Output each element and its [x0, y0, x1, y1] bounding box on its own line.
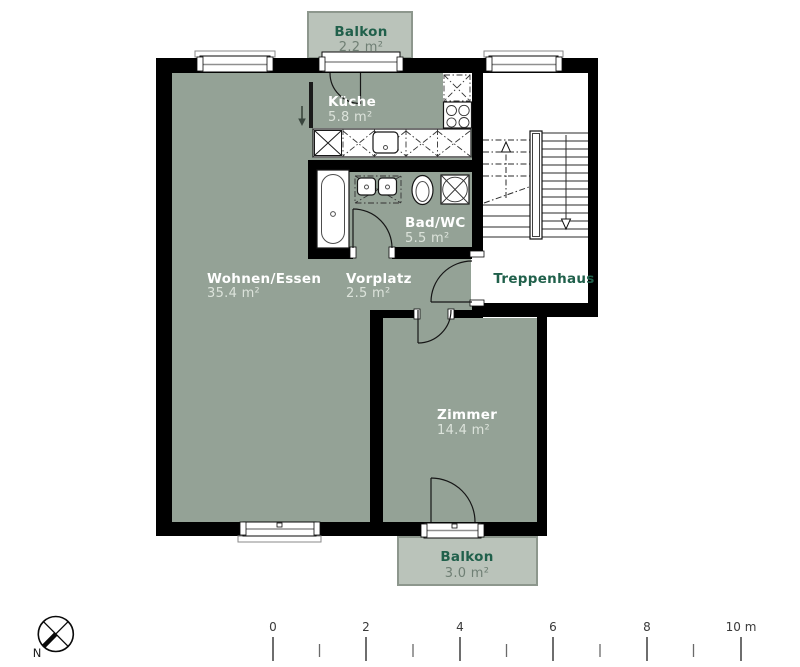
floor-plan-page: Balkon 2.2 m² Küche 5.8 m² Bad/WC 5.5 m²… — [0, 0, 800, 667]
label-balkon-bottom: Balkon — [440, 549, 493, 565]
scale-bar: 0 2 4 6 8 10 m — [269, 620, 756, 661]
label-treppenhaus: Treppenhaus — [493, 271, 594, 287]
label-kueche: Küche — [328, 94, 376, 110]
scale-tick-8: 8 — [643, 620, 651, 634]
scale-tick-0: 0 — [269, 620, 277, 634]
scale-tick-6: 6 — [549, 620, 557, 634]
area-vorplatz: 2.5 m² — [346, 286, 390, 301]
scale-tick-2: 2 — [362, 620, 370, 634]
area-bad-wc: 5.5 m² — [405, 231, 449, 246]
scale-minor-ticks — [320, 644, 694, 657]
window-stairwell — [484, 51, 563, 72]
stair-down-arrow-icon — [562, 219, 571, 229]
wall-stairwell-bottom — [472, 303, 598, 317]
wall-bottom — [156, 522, 547, 536]
compass-icon: N — [33, 617, 74, 661]
stair-up-arrow-icon — [502, 142, 511, 152]
area-balkon-bottom: 3.0 m² — [445, 566, 489, 581]
wall-kitchen-stairwell — [472, 58, 483, 255]
area-kueche: 5.8 m² — [328, 110, 372, 125]
wall-kitchen-partition — [309, 82, 313, 128]
area-zimmer: 14.4 m² — [437, 423, 490, 438]
wall-zimmer-right — [537, 310, 547, 536]
entrance-threshold — [471, 255, 484, 303]
stair-treads-up-flight-solid — [483, 205, 530, 237]
wall-vorplatz-zimmer-b — [450, 310, 483, 318]
bathtub-icon — [317, 170, 349, 248]
window-bottom-living — [238, 522, 321, 542]
toilet-icon — [412, 176, 433, 205]
wall-bath-south-b — [392, 247, 472, 259]
floor-plan-canvas: Balkon 2.2 m² Küche 5.8 m² Bad/WC 5.5 m²… — [0, 0, 800, 667]
compass-north-label: N — [33, 646, 42, 660]
label-zimmer: Zimmer — [437, 407, 497, 423]
floor-zimmer-door-passage — [418, 310, 450, 318]
area-wohnen-essen: 35.4 m² — [207, 286, 260, 301]
label-vorplatz: Vorplatz — [346, 271, 412, 287]
label-wohnen-essen: Wohnen/Essen — [207, 271, 321, 287]
area-balkon-top: 2.2 m² — [339, 40, 383, 55]
wall-bath-west — [308, 160, 317, 259]
wall-zimmer-left — [370, 310, 383, 522]
stove-icon — [444, 102, 472, 128]
stair-stringer — [530, 131, 542, 239]
staircase — [483, 131, 588, 239]
balcony-door-top — [319, 52, 403, 72]
window-top-living — [195, 51, 275, 72]
balcony-door-bottom — [421, 523, 484, 538]
scale-tick-4: 4 — [456, 620, 464, 634]
washing-machine-icon — [441, 175, 469, 204]
label-bad-wc: Bad/WC — [405, 215, 466, 231]
wall-left — [156, 58, 172, 536]
scale-tick-10m: 10 m — [726, 620, 757, 634]
label-balkon-top: Balkon — [334, 24, 387, 40]
